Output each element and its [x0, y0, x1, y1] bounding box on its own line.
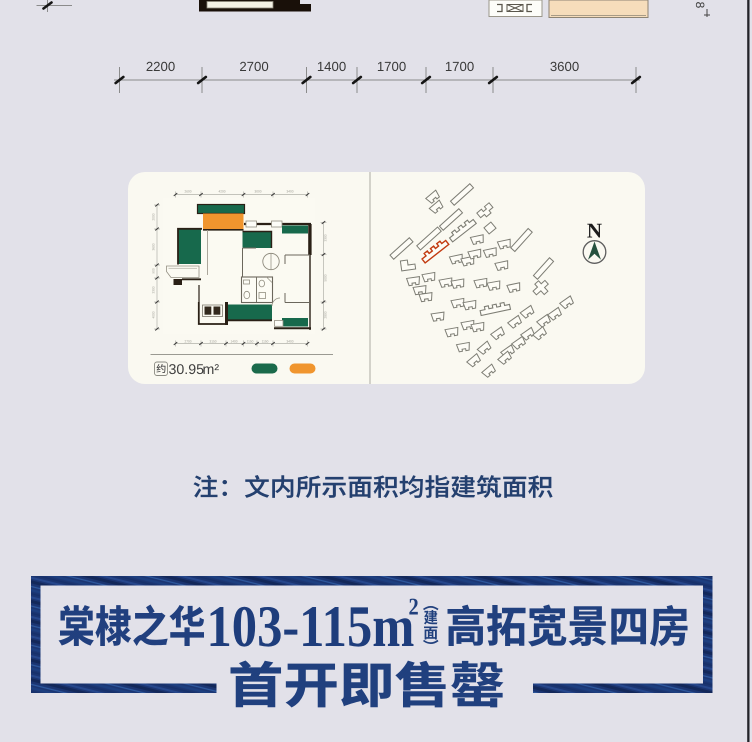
svg-text:2: 2 [409, 595, 419, 621]
svg-text:2800: 2800 [324, 311, 328, 318]
svg-text:1400: 1400 [317, 59, 346, 74]
svg-text:3600: 3600 [152, 243, 156, 250]
svg-text:1150: 1150 [247, 340, 254, 344]
svg-text:103-115m: 103-115m [207, 593, 415, 659]
svg-text:3300: 3300 [152, 286, 156, 293]
svg-text:2700: 2700 [184, 340, 191, 344]
svg-text:3000: 3000 [254, 190, 261, 194]
svg-text:1400: 1400 [230, 340, 237, 344]
svg-text:2200: 2200 [146, 59, 175, 74]
svg-text:4200: 4200 [218, 190, 225, 194]
svg-text:N: N [587, 219, 602, 243]
svg-text:30.95: 30.95 [169, 362, 205, 378]
svg-text:900: 900 [152, 268, 156, 274]
svg-text:3150: 3150 [209, 340, 216, 344]
svg-text:3400: 3400 [286, 190, 293, 194]
svg-text:4000: 4000 [152, 311, 156, 318]
svg-text:3400: 3400 [286, 340, 293, 344]
svg-text:2600: 2600 [184, 190, 191, 194]
svg-text:m²: m² [203, 362, 220, 378]
svg-text:1150: 1150 [262, 340, 269, 344]
svg-text:1700: 1700 [445, 59, 474, 74]
svg-text:2000: 2000 [152, 213, 156, 220]
svg-text:3600: 3600 [550, 59, 579, 74]
svg-text:3300: 3300 [324, 234, 328, 241]
svg-text:1700: 1700 [377, 59, 406, 74]
svg-text:8: 8 [693, 2, 707, 9]
svg-text:5000: 5000 [324, 274, 328, 281]
svg-text:2700: 2700 [239, 59, 268, 74]
